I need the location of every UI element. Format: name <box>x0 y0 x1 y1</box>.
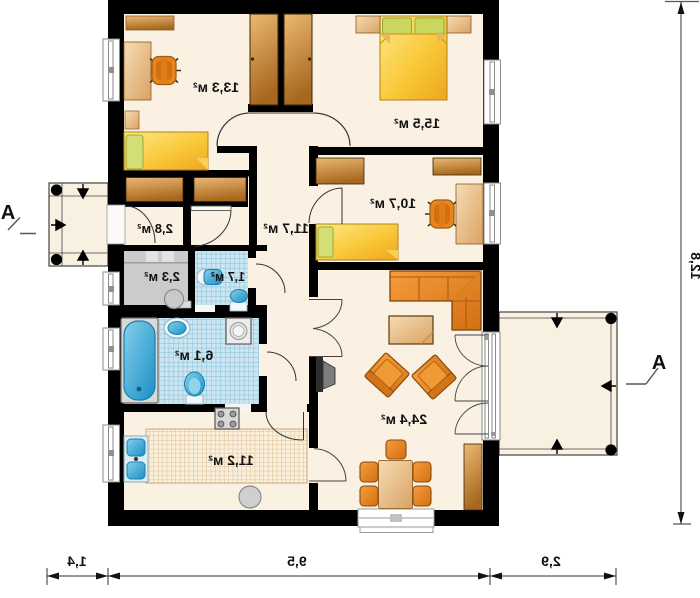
svg-text:A: A <box>652 352 666 374</box>
svg-text:11,2 м²: 11,2 м² <box>208 452 254 468</box>
svg-text:24,4 м²: 24,4 м² <box>381 411 427 427</box>
svg-text:2,8 м²: 2,8 м² <box>137 221 173 236</box>
svg-text:13,3 м²: 13,3 м² <box>193 79 239 95</box>
svg-text:1,4: 1,4 <box>67 553 87 569</box>
svg-text:15,5 м²: 15,5 м² <box>394 115 440 131</box>
svg-text:6,1 м²: 6,1 м² <box>174 347 213 363</box>
svg-text:11,7 м²: 11,7 м² <box>263 220 309 236</box>
svg-text:1,7 м²: 1,7 м² <box>211 270 245 284</box>
svg-text:10,7 м²: 10,7 м² <box>370 195 416 211</box>
svg-text:9,5: 9,5 <box>287 553 307 569</box>
svg-text:2,3 м²: 2,3 м² <box>144 269 180 284</box>
svg-text:A: A <box>1 202 15 224</box>
svg-text:2,9: 2,9 <box>541 553 561 569</box>
svg-text:12,8: 12,8 <box>688 252 700 279</box>
